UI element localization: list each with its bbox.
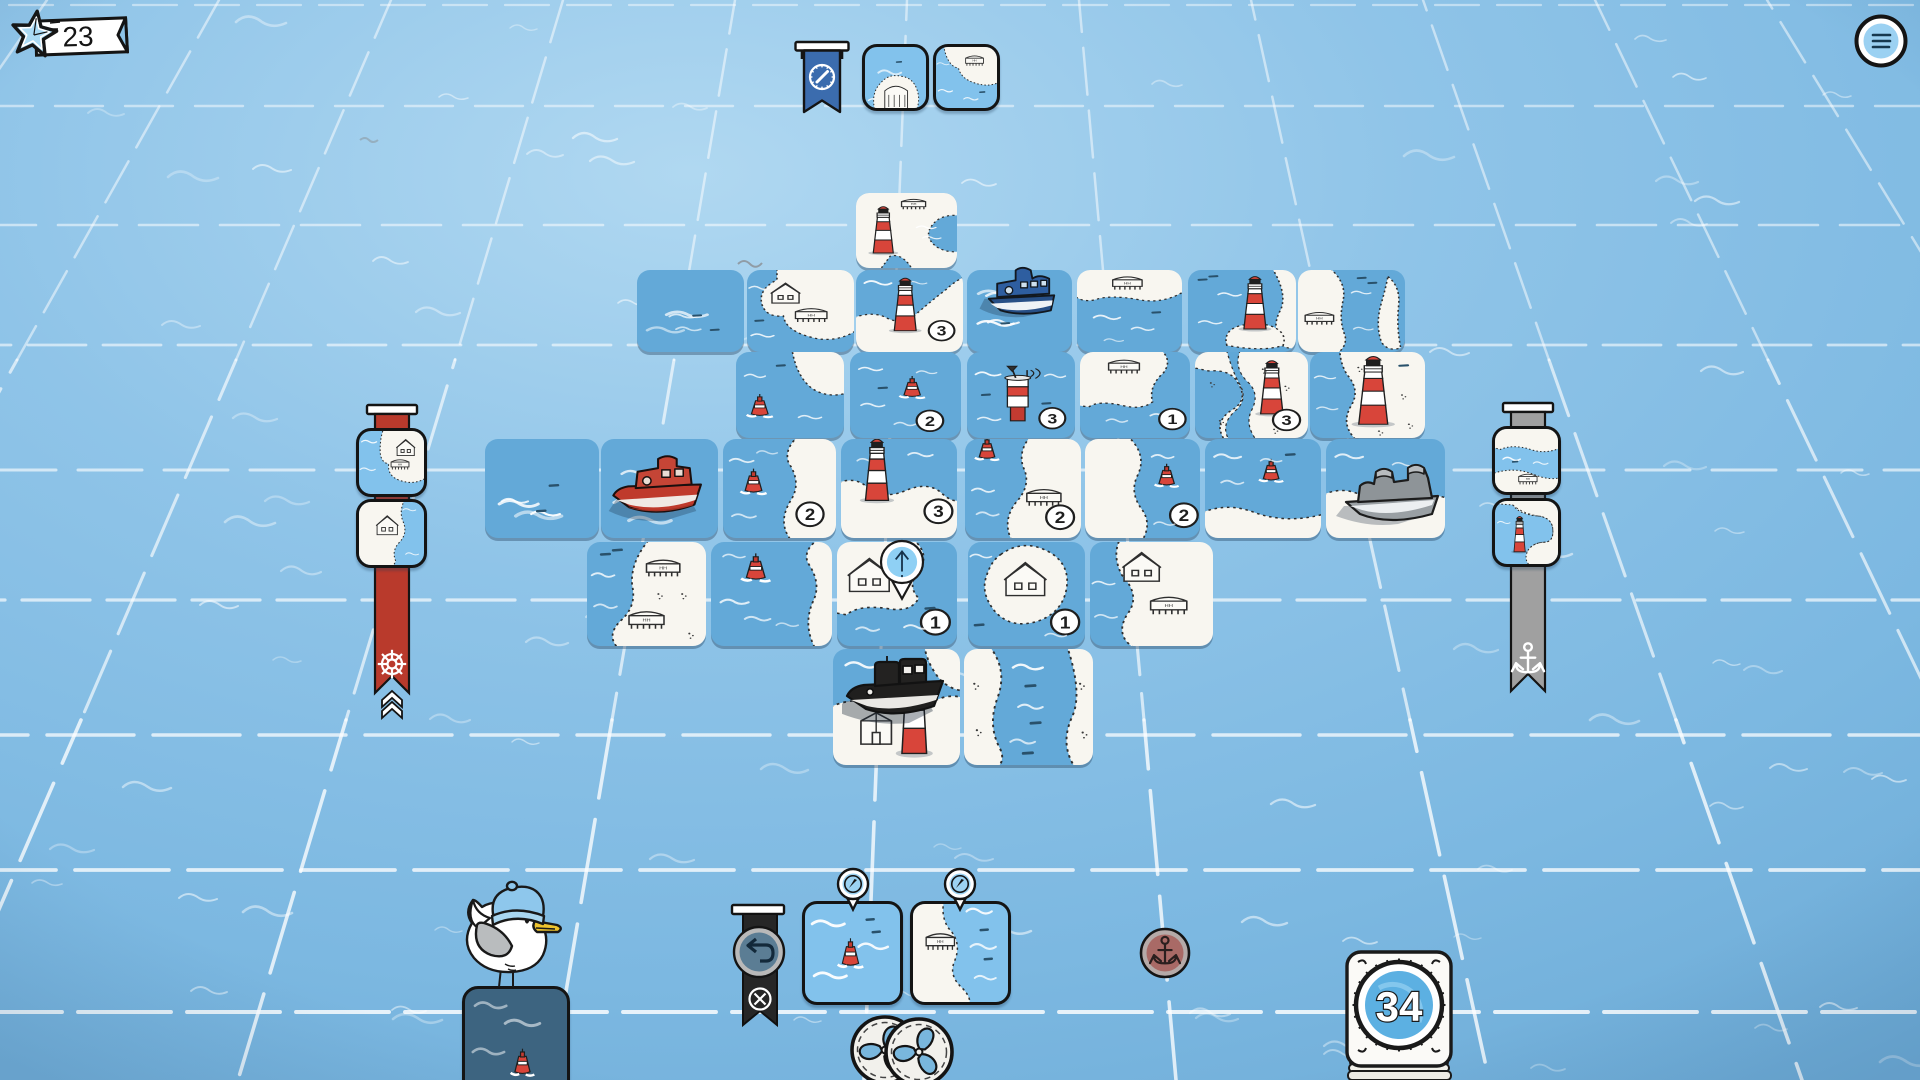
svg-text:HH: HH [1165, 603, 1174, 608]
svg-text:HH: HH [398, 462, 402, 466]
svg-text:HH: HH [1526, 477, 1530, 481]
svg-text:HH: HH [1040, 495, 1048, 501]
svg-text:HH: HH [808, 313, 815, 317]
svg-text:3: 3 [933, 503, 944, 521]
svg-text:1: 1 [1060, 612, 1071, 632]
svg-text:1: 1 [930, 613, 941, 632]
svg-text:3: 3 [1281, 412, 1291, 428]
svg-text:HH: HH [937, 939, 944, 944]
svg-text:HH: HH [1120, 364, 1127, 368]
svg-text:2: 2 [1055, 508, 1066, 526]
svg-text:HH: HH [972, 59, 976, 63]
svg-text:HH: HH [659, 566, 667, 572]
svg-text:2: 2 [1179, 506, 1190, 524]
svg-text:3: 3 [1047, 411, 1057, 427]
svg-text:3: 3 [937, 324, 947, 339]
svg-text:1: 1 [1167, 412, 1177, 428]
svg-text:34: 34 [1376, 983, 1423, 1030]
svg-text:HH: HH [1316, 316, 1323, 320]
svg-text:HH: HH [911, 203, 917, 206]
svg-text:23: 23 [62, 21, 94, 53]
svg-text:2: 2 [805, 505, 816, 524]
svg-text:HH: HH [1124, 281, 1131, 285]
svg-text:HH: HH [642, 618, 650, 624]
svg-text:2: 2 [925, 414, 935, 430]
